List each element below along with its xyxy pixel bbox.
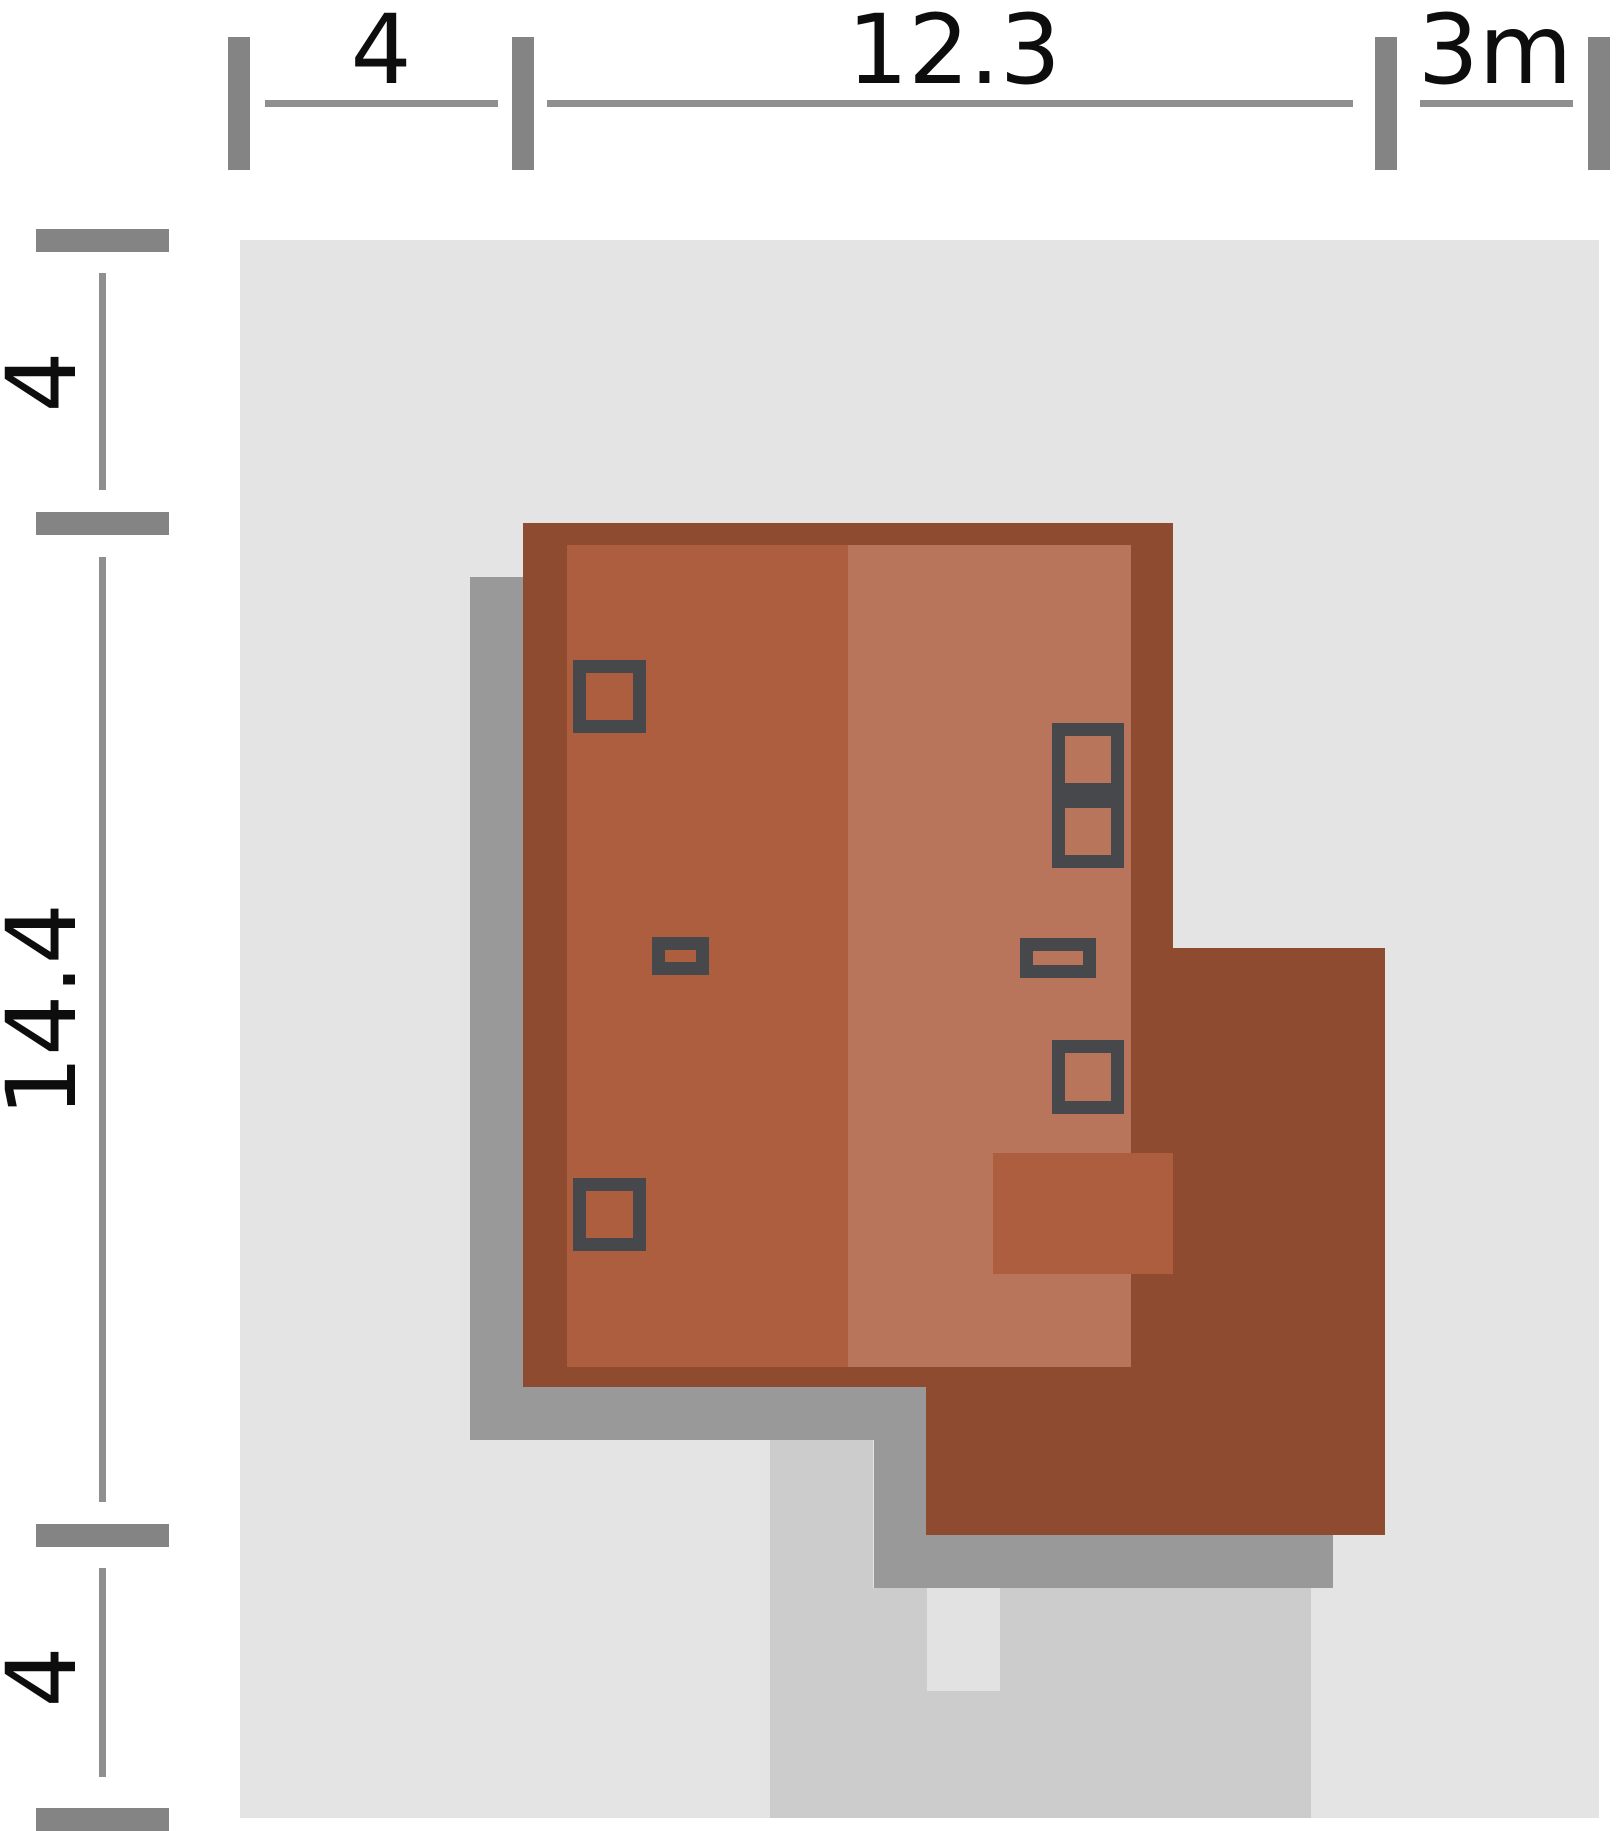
dim-line-left-1 [99, 273, 106, 490]
chimney-right-lower [1052, 795, 1124, 868]
entry-shadow [874, 1440, 926, 1588]
flat-roof-right-wing [1173, 948, 1385, 1535]
chimney-bottom-left [573, 1178, 646, 1251]
flat-roof-bottom-wing [926, 1387, 1173, 1535]
dim-line-left-3 [99, 1568, 106, 1777]
dim-label-top-right: 3m [1375, 0, 1615, 100]
dim-label-left-middle: 14.4 [0, 860, 92, 1160]
dim-label-top-left: 4 [231, 0, 531, 100]
driveway-apron [770, 1588, 1311, 1818]
chimney-right-upper [1052, 723, 1124, 796]
roof-vent-right [1020, 938, 1096, 978]
entry-pad [927, 1588, 1000, 1691]
chimney-right-middle [1052, 1040, 1124, 1114]
dim-line-left-2 [99, 557, 106, 1502]
garage-shadow [926, 1535, 1333, 1588]
chimney-top-left [573, 660, 646, 733]
site-plan-canvas: 4 12.3 3m 4 14.4 4 [0, 0, 1616, 1831]
dim-label-top-middle: 12.3 [804, 0, 1104, 100]
lower-roof-section [993, 1153, 1173, 1274]
dim-label-left-bottom: 4 [0, 1527, 92, 1827]
roof-vent-left [652, 937, 709, 975]
dim-label-left-top: 4 [0, 232, 92, 532]
